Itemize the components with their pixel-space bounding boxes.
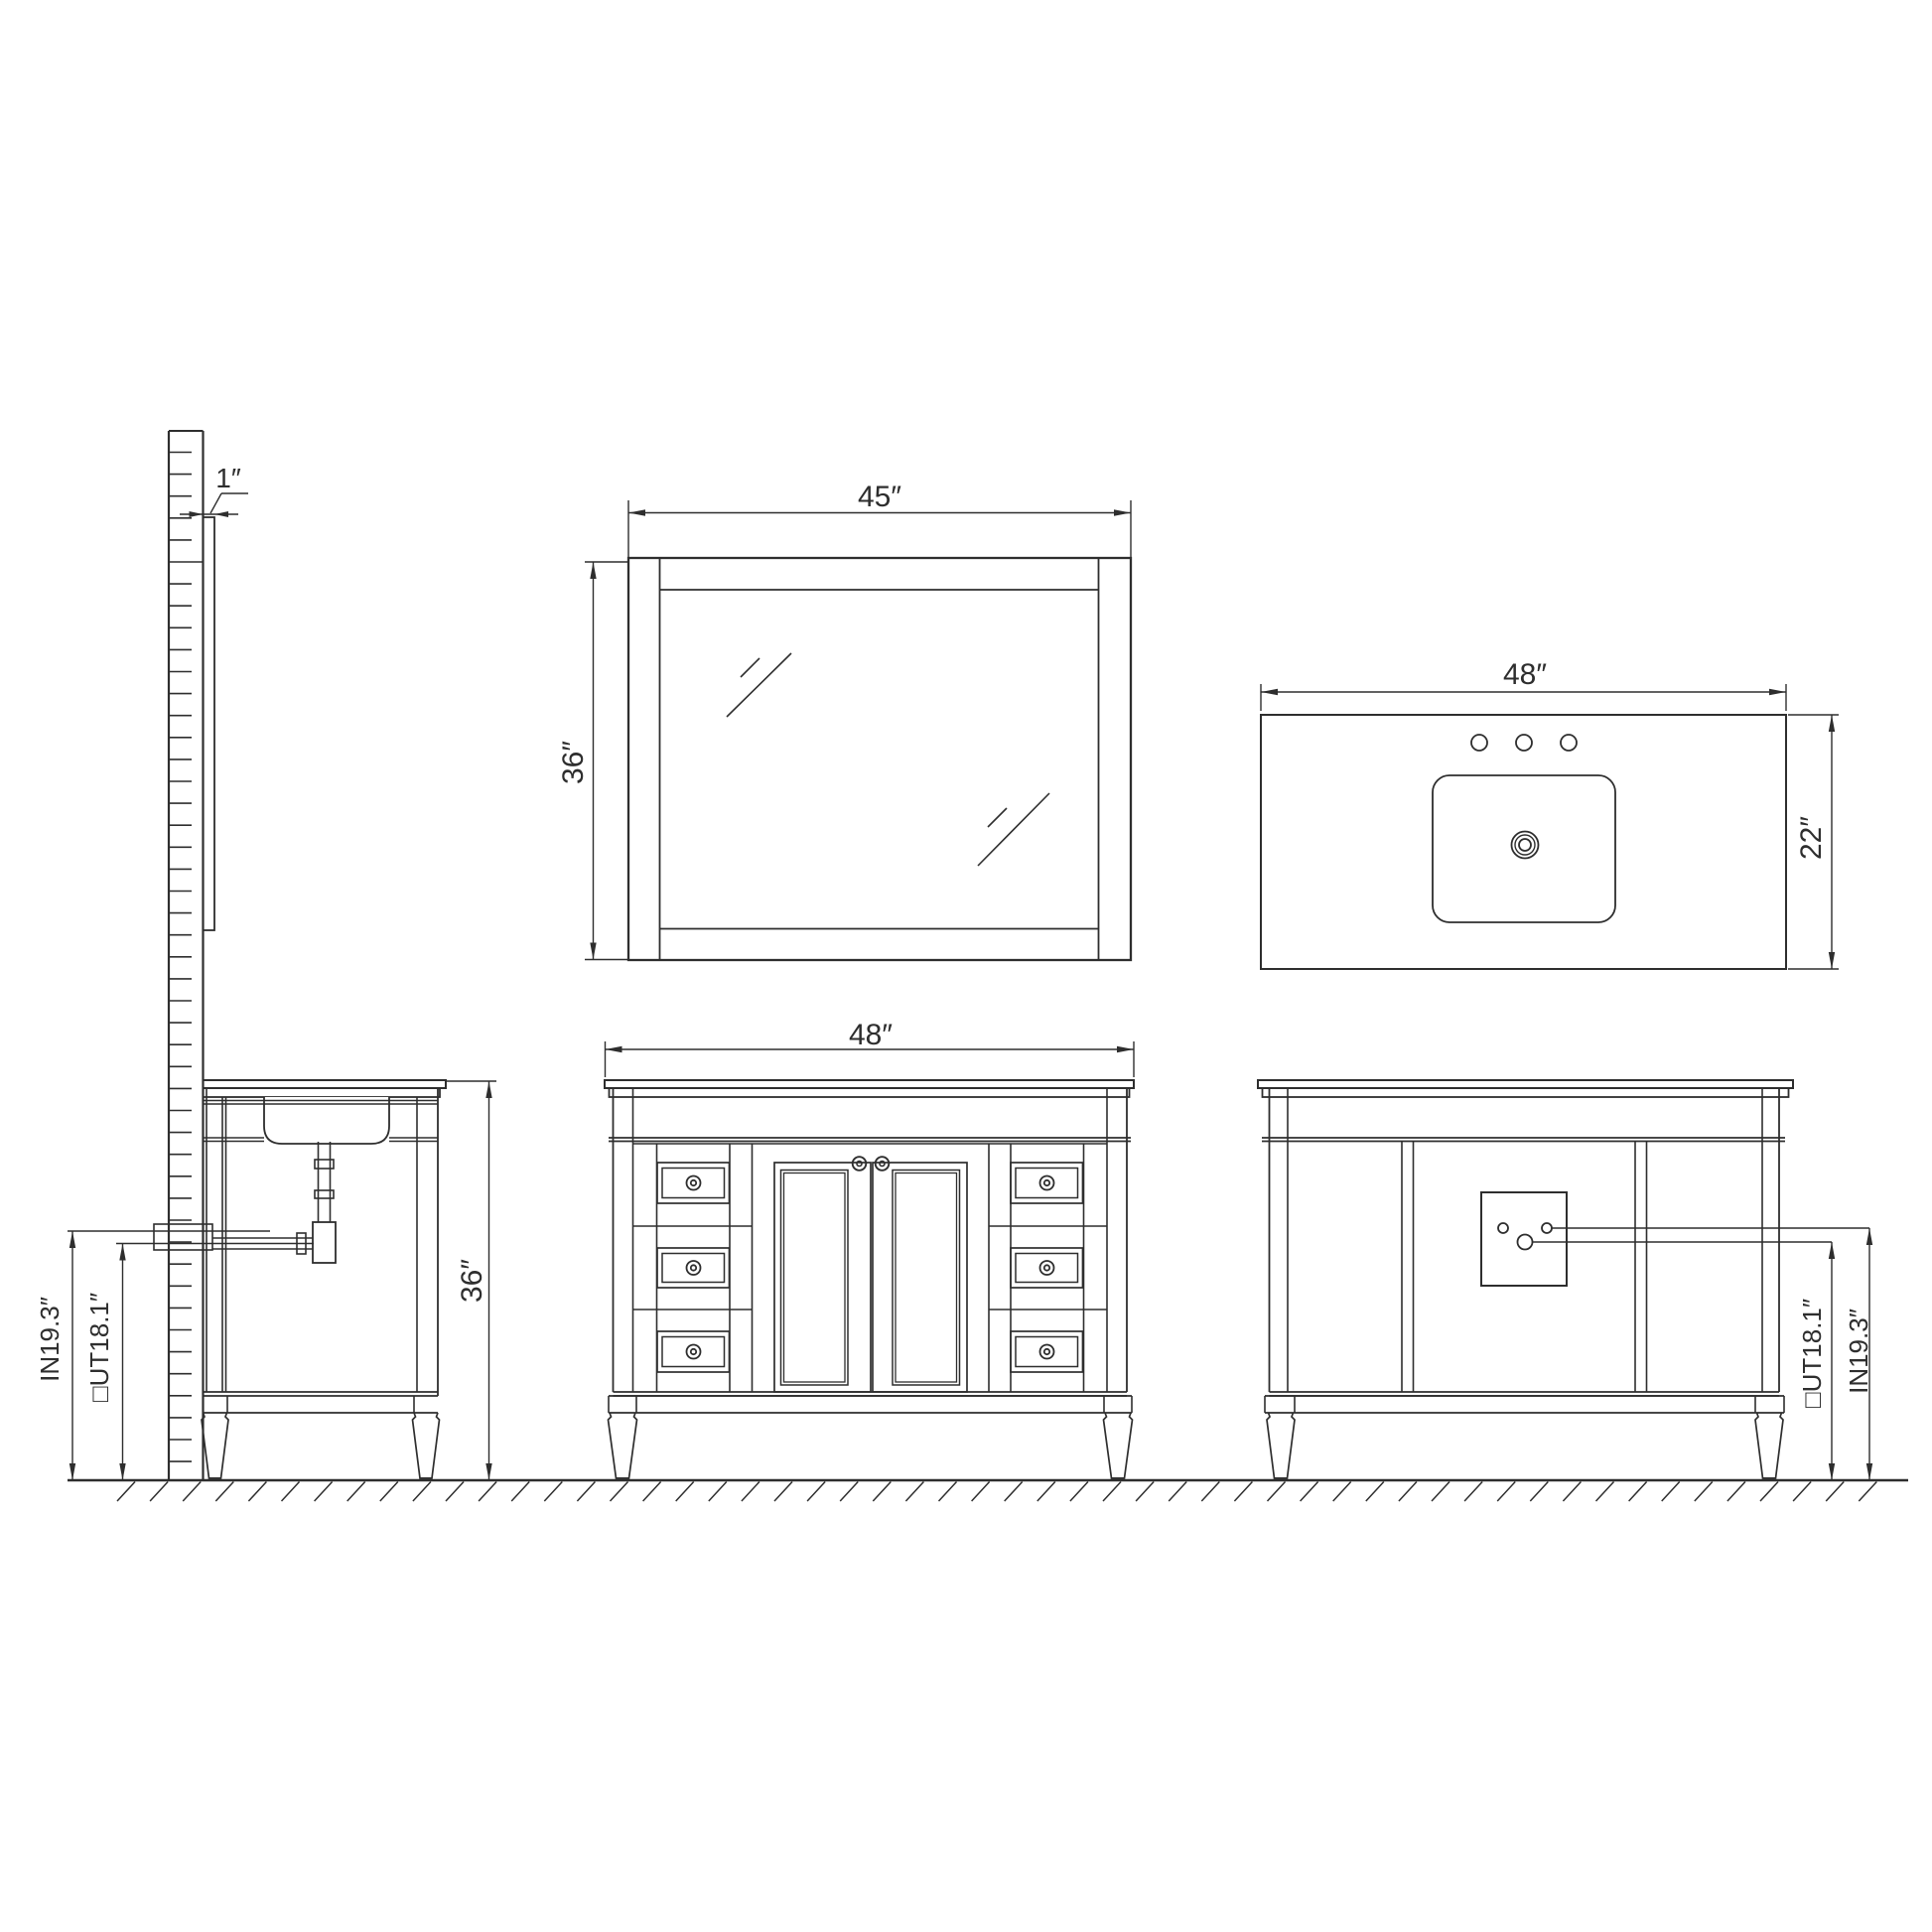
svg-text:1″: 1″ xyxy=(215,463,241,493)
svg-text:45″: 45″ xyxy=(858,481,901,513)
svg-text:48″: 48″ xyxy=(849,1019,893,1051)
svg-text:36″: 36″ xyxy=(557,741,590,784)
svg-text:IN19.3″: IN19.3″ xyxy=(35,1297,65,1382)
svg-text:IN19.3″: IN19.3″ xyxy=(1844,1309,1873,1394)
svg-text:□UT18.1″: □UT18.1″ xyxy=(84,1293,114,1402)
svg-text:48″: 48″ xyxy=(1503,658,1547,691)
svg-text:22″: 22″ xyxy=(1795,816,1828,860)
svg-text:36″: 36″ xyxy=(456,1259,488,1303)
svg-text:□UT18.1″: □UT18.1″ xyxy=(1797,1299,1827,1408)
